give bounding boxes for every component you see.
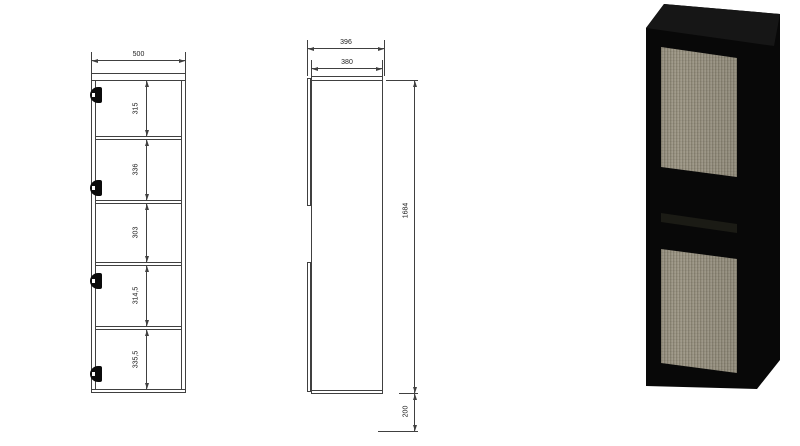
- carcass-depth-dimension-line: [312, 68, 382, 69]
- hinge-icon: [90, 87, 102, 103]
- render-3d: [640, 0, 790, 400]
- shelf-line: [96, 326, 181, 330]
- compartment-3-label: 303: [132, 213, 141, 253]
- hinge-icon: [90, 366, 102, 382]
- compartment-dimension-line: [146, 140, 147, 200]
- height-label: 1684: [402, 191, 411, 231]
- compartment-4-label: 314,5: [132, 276, 141, 316]
- bottom-panel-line: [92, 389, 185, 390]
- side-profile-outline: [311, 76, 383, 394]
- compartment-dimension-line: [146, 204, 147, 262]
- compartment-1-label: 315: [132, 89, 141, 129]
- hinge-icon: [90, 273, 102, 289]
- top-panel-line: [92, 80, 185, 81]
- floor-clearance-label: 200: [402, 392, 411, 432]
- upper-door-profile: [307, 78, 311, 206]
- compartment-2-label: 336: [132, 150, 141, 190]
- lower-door-profile: [307, 262, 311, 392]
- top-panel-line: [312, 80, 382, 81]
- compartment-dimension-line: [146, 266, 147, 326]
- shelf-line: [96, 262, 181, 266]
- outer-depth-label: 396: [308, 38, 384, 47]
- hinge-icon: [90, 180, 102, 196]
- extension-line: [384, 40, 385, 76]
- width-dimension-line: [92, 60, 185, 61]
- height-dimension-line: [414, 81, 415, 393]
- carcass-depth-label: 380: [312, 58, 382, 67]
- extension-line: [382, 60, 383, 76]
- shelf-line: [96, 200, 181, 204]
- inner-edge-left: [95, 80, 96, 390]
- floor-clearance-dimension-line: [414, 394, 415, 431]
- compartment-dimension-line: [146, 330, 147, 389]
- inner-edge-right: [181, 80, 182, 390]
- shelf-line: [96, 136, 181, 140]
- outer-depth-dimension-line: [308, 48, 384, 49]
- compartment-5-label: 335,5: [132, 340, 141, 380]
- compartment-dimension-line: [146, 81, 147, 136]
- cabinet-technical-drawing: 500 315 336 303 314,5 335,5 396: [0, 0, 800, 446]
- bottom-panel-line: [312, 390, 382, 391]
- floor-line: [378, 431, 418, 432]
- width-dimension-label: 500: [91, 50, 186, 59]
